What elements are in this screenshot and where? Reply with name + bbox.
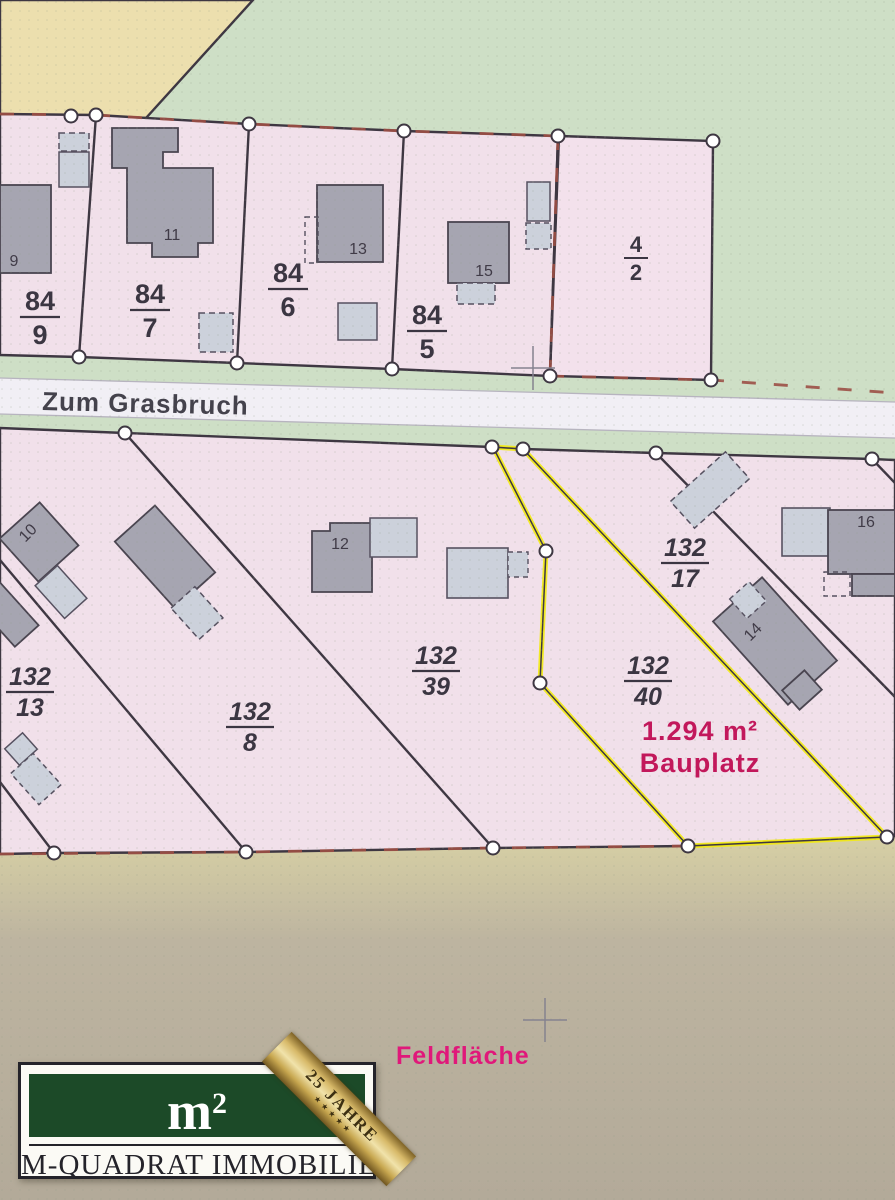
vertex-marker xyxy=(48,847,61,860)
parcel-label-4-2-num: 4 xyxy=(630,232,643,257)
parcel-label-132-13-num: 132 xyxy=(9,663,51,691)
parcel-label-84-9-den: 9 xyxy=(32,320,47,350)
parcel-label-84-7-num: 84 xyxy=(135,279,165,309)
parcel-label-132-17-num: 132 xyxy=(664,534,706,562)
parcel-label-84-7-den: 7 xyxy=(142,313,157,343)
vertex-marker xyxy=(544,370,557,383)
vertex-marker xyxy=(73,351,86,364)
anniversary-number: 25 xyxy=(302,1066,330,1094)
house-number-13: 13 xyxy=(349,241,367,258)
vertex-marker xyxy=(881,831,894,844)
vertex-marker xyxy=(243,118,256,131)
parcel-label-132-13-den: 13 xyxy=(16,694,44,722)
parcel-label-84-5-num: 84 xyxy=(412,300,442,330)
parcel-label-132-39-den: 39 xyxy=(422,673,450,701)
parcel-label-84-6-num: 84 xyxy=(273,258,303,288)
logo-divider xyxy=(29,1144,365,1146)
company-logo: m2 M-QUADRAT IMMOBILIEN 25 JAHRE ★★★★★ xyxy=(18,1062,376,1179)
parcel-label-132-40-den: 40 xyxy=(633,683,662,711)
vertex-marker xyxy=(240,846,253,859)
vertex-marker xyxy=(552,130,565,143)
logo-m: m xyxy=(167,1081,212,1141)
house-number-11: 11 xyxy=(164,227,181,244)
house-number-15: 15 xyxy=(475,263,493,280)
parcel-label-4-2-den: 2 xyxy=(630,260,642,285)
vertex-marker xyxy=(398,125,411,138)
street-name-label: Zum Grasbruch xyxy=(42,386,249,421)
vertex-marker xyxy=(540,545,553,558)
parcel-label-132-39-num: 132 xyxy=(415,642,457,670)
house-number-16: 16 xyxy=(857,514,875,531)
house-number-9: 9 xyxy=(10,253,19,270)
vertex-marker xyxy=(866,453,879,466)
vertex-marker xyxy=(119,427,132,440)
scan-dot-texture xyxy=(0,0,895,1200)
vertex-marker xyxy=(65,110,78,123)
highlight-type-label: Bauplatz xyxy=(640,748,761,778)
parcel-label-132-17-den: 17 xyxy=(671,565,700,593)
cadastral-map: 84 9 84 7 84 6 84 5 4 2 132 13 132 8 132… xyxy=(0,0,895,1200)
field-area-label: Feldfläche xyxy=(396,1042,530,1070)
vertex-marker xyxy=(386,363,399,376)
parcel-label-132-40-num: 132 xyxy=(627,652,669,680)
parcel-label-132-8-den: 8 xyxy=(243,729,257,757)
vertex-marker xyxy=(90,109,103,122)
parcel-label-84-5-den: 5 xyxy=(419,334,434,364)
vertex-marker xyxy=(486,441,499,454)
vertex-marker xyxy=(705,374,718,387)
vertex-marker xyxy=(650,447,663,460)
house-number-12: 12 xyxy=(331,536,349,553)
vertex-marker xyxy=(487,842,500,855)
parcel-label-132-8-num: 132 xyxy=(229,698,271,726)
cadastral-map-photo: 84 9 84 7 84 6 84 5 4 2 132 13 132 8 132… xyxy=(0,0,895,1200)
vertex-marker xyxy=(231,357,244,370)
vertex-marker xyxy=(707,135,720,148)
vertex-marker xyxy=(534,677,547,690)
vertex-marker xyxy=(682,840,695,853)
logo-company-name: M-QUADRAT IMMOBILIEN xyxy=(21,1149,373,1182)
vertex-marker xyxy=(517,443,530,456)
logo-superscript-2: 2 xyxy=(212,1087,227,1120)
parcel-label-84-9-num: 84 xyxy=(25,286,55,316)
highlight-area-label: 1.294 m² xyxy=(642,716,758,746)
parcel-label-84-6-den: 6 xyxy=(280,292,295,322)
